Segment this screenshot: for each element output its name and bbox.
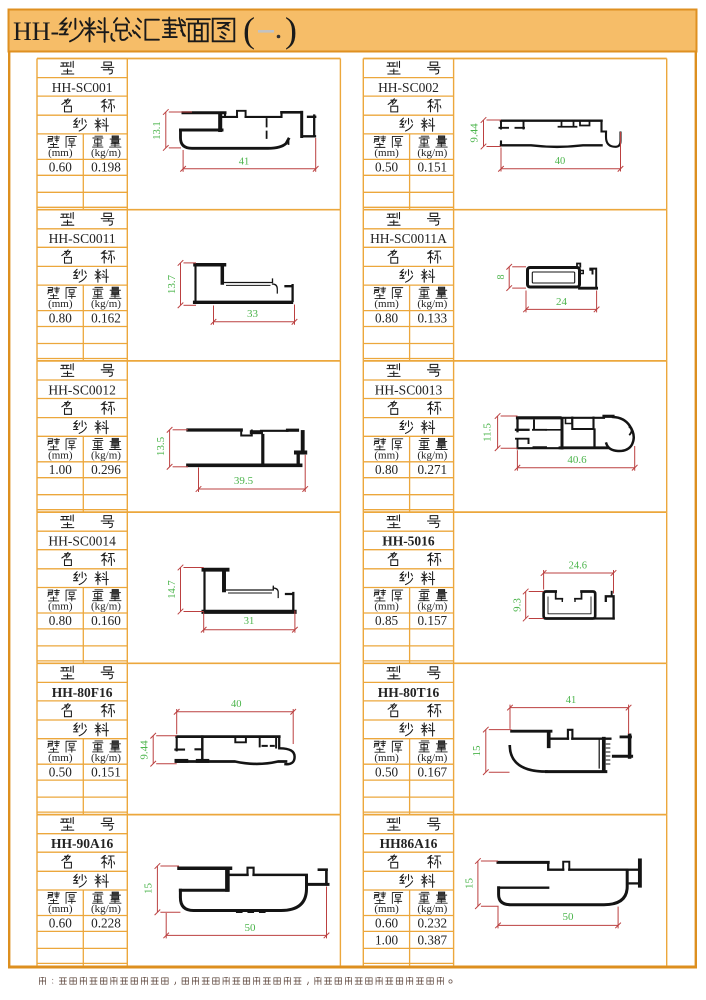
svg-text:HH86A16: HH86A16	[380, 836, 438, 851]
svg-text:(kg/m): (kg/m)	[417, 752, 447, 764]
svg-text:0.151: 0.151	[91, 764, 121, 779]
svg-text:(mm): (mm)	[48, 903, 73, 915]
svg-text:0.80: 0.80	[49, 311, 72, 326]
svg-text:24.6: 24.6	[569, 560, 587, 571]
svg-text:(mm): (mm)	[374, 903, 399, 915]
svg-text:HH-SC0012: HH-SC0012	[48, 382, 116, 397]
svg-text:0.271: 0.271	[417, 462, 447, 477]
svg-text:0.60: 0.60	[49, 160, 72, 175]
svg-text:(kg/m): (kg/m)	[417, 601, 447, 613]
svg-text:): )	[285, 10, 297, 50]
svg-text:0.162: 0.162	[91, 311, 121, 326]
svg-text:1.00: 1.00	[49, 462, 72, 477]
svg-text:(: (	[243, 10, 255, 50]
svg-text:(mm): (mm)	[48, 298, 73, 310]
svg-text:(mm): (mm)	[374, 752, 399, 764]
svg-text:0.198: 0.198	[91, 160, 121, 175]
svg-text:39.5: 39.5	[234, 475, 254, 487]
svg-text:40.6: 40.6	[567, 454, 587, 466]
svg-text:(kg/m): (kg/m)	[91, 449, 121, 461]
svg-text:24: 24	[556, 296, 568, 308]
svg-text:(mm): (mm)	[48, 752, 73, 764]
svg-text:15: 15	[463, 878, 475, 890]
svg-text:HH-80F16: HH-80F16	[52, 685, 113, 700]
svg-text:50: 50	[245, 922, 257, 934]
svg-text:13.5: 13.5	[155, 436, 167, 456]
svg-text:0.133: 0.133	[417, 311, 447, 326]
svg-text:9.44: 9.44	[139, 740, 151, 760]
svg-text:0.80: 0.80	[49, 613, 72, 628]
svg-text:(mm): (mm)	[48, 449, 73, 461]
svg-text:HH-SC0011A: HH-SC0011A	[370, 231, 447, 246]
svg-text:0.80: 0.80	[375, 462, 398, 477]
svg-text:33: 33	[247, 308, 259, 320]
svg-text:(mm): (mm)	[374, 147, 399, 159]
svg-text:(kg/m): (kg/m)	[417, 449, 447, 461]
svg-text:15: 15	[143, 883, 155, 895]
svg-text:0.157: 0.157	[417, 613, 447, 628]
svg-text:0.50: 0.50	[49, 764, 72, 779]
svg-text:HH-80T16: HH-80T16	[378, 685, 440, 700]
svg-text:HH-SC001: HH-SC001	[52, 80, 113, 95]
svg-text:41: 41	[566, 695, 577, 706]
svg-text:HH-5016: HH-5016	[382, 534, 435, 549]
svg-text:0.85: 0.85	[375, 613, 398, 628]
svg-text:0.387: 0.387	[417, 933, 447, 948]
svg-text:(kg/m): (kg/m)	[417, 298, 447, 310]
svg-text:HH-SC0013: HH-SC0013	[375, 382, 443, 397]
svg-text:(mm): (mm)	[48, 147, 73, 159]
svg-text:HH-: HH-	[13, 17, 59, 46]
svg-text:0.80: 0.80	[375, 311, 398, 326]
svg-text:13.1: 13.1	[152, 121, 163, 139]
svg-text:14.7: 14.7	[167, 580, 178, 598]
svg-text:9.3: 9.3	[511, 598, 523, 612]
svg-text:31: 31	[244, 616, 255, 627]
svg-text:11.5: 11.5	[482, 423, 494, 442]
svg-text:40: 40	[555, 156, 566, 167]
svg-text:0.60: 0.60	[49, 916, 72, 931]
svg-text:0.60: 0.60	[375, 916, 398, 931]
svg-text:(kg/m): (kg/m)	[91, 601, 121, 613]
svg-text:(kg/m): (kg/m)	[91, 298, 121, 310]
svg-text:(mm): (mm)	[374, 298, 399, 310]
svg-text:0.228: 0.228	[91, 916, 121, 931]
svg-text:(kg/m): (kg/m)	[91, 903, 121, 915]
svg-text:50: 50	[563, 911, 575, 923]
svg-text:0.232: 0.232	[417, 916, 447, 931]
svg-text:(mm): (mm)	[48, 601, 73, 613]
svg-text:(mm): (mm)	[374, 449, 399, 461]
svg-text:9.44: 9.44	[469, 123, 481, 143]
svg-text:15: 15	[471, 745, 483, 757]
svg-text:0.50: 0.50	[375, 160, 398, 175]
svg-text:0.160: 0.160	[91, 613, 121, 628]
svg-text:8: 8	[496, 275, 507, 280]
svg-text:HH-90A16: HH-90A16	[51, 836, 113, 851]
svg-text:HH-SC0014: HH-SC0014	[48, 534, 116, 549]
svg-text:(kg/m): (kg/m)	[417, 903, 447, 915]
svg-text:0.167: 0.167	[417, 764, 447, 779]
svg-text:0.151: 0.151	[417, 160, 447, 175]
svg-text:0.296: 0.296	[91, 462, 121, 477]
svg-text:(kg/m): (kg/m)	[417, 147, 447, 159]
svg-text:41: 41	[239, 156, 250, 167]
svg-text:HH-SC0011: HH-SC0011	[49, 231, 116, 246]
svg-text:(mm): (mm)	[374, 601, 399, 613]
svg-text:(kg/m): (kg/m)	[91, 752, 121, 764]
svg-text:(kg/m): (kg/m)	[91, 147, 121, 159]
svg-text:40: 40	[231, 699, 242, 710]
svg-text:1.00: 1.00	[375, 933, 398, 948]
svg-text:13.7: 13.7	[166, 274, 178, 294]
svg-text:0.50: 0.50	[375, 764, 398, 779]
svg-text:HH-SC002: HH-SC002	[378, 80, 439, 95]
